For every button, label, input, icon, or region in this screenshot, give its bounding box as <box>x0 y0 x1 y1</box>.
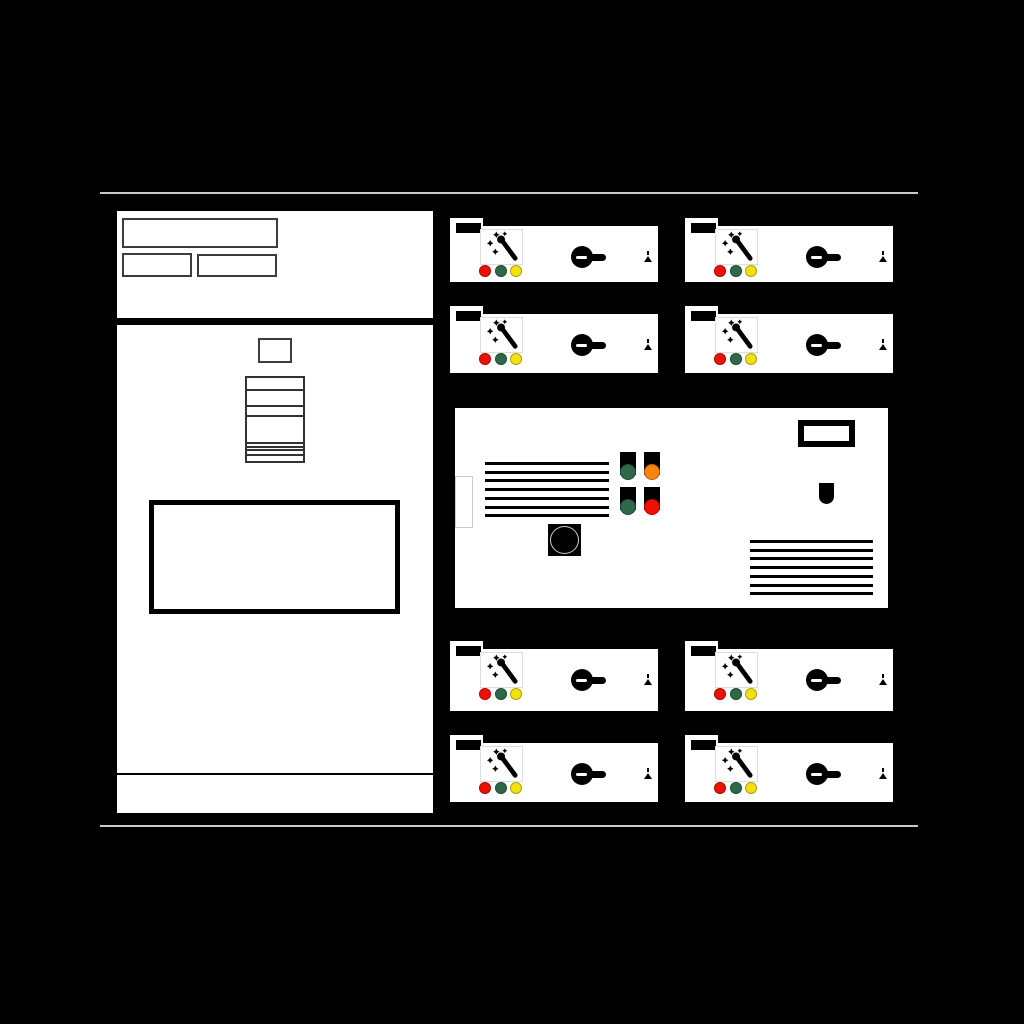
rotary-switch-knob[interactable] <box>806 246 828 268</box>
knob-slit <box>811 773 822 776</box>
rotary-switch-knob[interactable] <box>806 669 828 691</box>
position-arrow-icon <box>879 344 887 350</box>
relay-stack-line-3 <box>247 415 303 417</box>
position-arrow-icon <box>644 344 652 350</box>
bay-b4 <box>685 743 893 802</box>
indicator-lamp-green <box>730 688 742 700</box>
right-louver-line-7 <box>750 592 873 595</box>
frame-line-bottom <box>100 825 918 827</box>
switch-mimic-icon <box>715 317 758 353</box>
knob-handle <box>584 254 606 261</box>
latch-slot <box>691 311 716 321</box>
cabinet-divider <box>117 318 433 325</box>
bay-b1 <box>685 226 893 282</box>
relay-stack-line-2 <box>247 405 303 407</box>
knob-handle <box>819 677 841 684</box>
switch-mimic-icon <box>715 229 758 265</box>
indicator-lamp-green <box>730 782 742 794</box>
position-arrow-icon <box>879 256 887 262</box>
knob-slit <box>576 344 587 347</box>
knob-slit <box>576 679 587 682</box>
bay-b3 <box>685 649 893 711</box>
indicator-lamp-yellow <box>745 353 757 365</box>
switch-mimic-icon <box>480 746 523 782</box>
relay-stack-line-1 <box>247 389 303 391</box>
relay-stack <box>245 376 305 463</box>
position-tick <box>882 339 884 343</box>
drawing-canvas <box>0 0 1024 1024</box>
indicator-lamp-green <box>495 265 507 277</box>
rotary-switch-knob[interactable] <box>571 669 593 691</box>
bay-a4 <box>450 743 658 802</box>
position-tick <box>647 339 649 343</box>
knob-handle <box>819 342 841 349</box>
position-tick <box>647 251 649 255</box>
right-louver-line-1 <box>750 540 873 543</box>
frame-line-top <box>100 192 918 194</box>
knob-slit <box>576 256 587 259</box>
left-louver-line-7 <box>485 514 609 517</box>
indicator-lamp-yellow <box>745 782 757 794</box>
indicator-lamp-red <box>714 265 726 277</box>
relay-stack-line-4 <box>247 442 303 444</box>
relay-stack-line-6 <box>247 449 303 451</box>
knob-slit <box>811 679 822 682</box>
nameplate-3 <box>197 254 277 277</box>
left-louver-line-5 <box>485 497 609 500</box>
side-tab <box>455 476 473 528</box>
indicator-lamp-green <box>730 353 742 365</box>
indicator-lamp-red <box>479 782 491 794</box>
indicator-lamp-green <box>495 782 507 794</box>
knob-handle <box>819 771 841 778</box>
indicator-lamp-red <box>479 265 491 277</box>
indicator-lamp-green <box>730 265 742 277</box>
switch-mimic-icon <box>480 229 523 265</box>
left-louver-line-6 <box>485 506 609 509</box>
switch-mimic-icon <box>715 652 758 688</box>
indicator-lamp-red <box>714 782 726 794</box>
position-arrow-icon <box>644 773 652 779</box>
meter-cutout <box>258 338 292 363</box>
relay-stack-line-5 <box>247 446 303 448</box>
kickplate-divider <box>117 773 433 775</box>
nameplate-1 <box>122 218 278 248</box>
meter-display-window <box>798 420 855 447</box>
bay-b2 <box>685 314 893 373</box>
position-tick <box>882 251 884 255</box>
knob-slit <box>576 773 587 776</box>
position-arrow-icon <box>644 679 652 685</box>
central-control-panel <box>455 408 888 608</box>
indicator-lamp-green <box>495 688 507 700</box>
knob-handle <box>584 342 606 349</box>
knob-slit <box>811 256 822 259</box>
rotary-switch-knob[interactable] <box>806 334 828 356</box>
rotary-switch-knob[interactable] <box>806 763 828 785</box>
indicator-lamp-red <box>714 688 726 700</box>
pushbutton-cap-red-4[interactable] <box>644 499 660 515</box>
latch-slot <box>456 740 481 750</box>
switch-mimic-icon <box>480 652 523 688</box>
switch-mimic-icon <box>480 317 523 353</box>
position-arrow-icon <box>644 256 652 262</box>
knob-handle <box>584 771 606 778</box>
left-louver-line-4 <box>485 488 609 491</box>
nameplate-2 <box>122 253 192 277</box>
pushbutton-cap-green-3[interactable] <box>620 499 636 515</box>
position-tick <box>882 768 884 772</box>
right-louver-line-5 <box>750 575 873 578</box>
rotary-switch-knob[interactable] <box>571 334 593 356</box>
pushbutton-cap-green-1[interactable] <box>620 464 636 480</box>
latch-slot <box>456 223 481 233</box>
right-louver-line-4 <box>750 566 873 569</box>
rotary-switch-knob[interactable] <box>571 246 593 268</box>
position-tick <box>647 674 649 678</box>
left-louver-line-2 <box>485 471 609 474</box>
indicator-lamp-yellow <box>510 782 522 794</box>
key-switch-slot[interactable] <box>819 483 834 504</box>
knob-handle <box>584 677 606 684</box>
left-louver-line-3 <box>485 479 609 482</box>
bay-a2 <box>450 314 658 373</box>
incomer-cabinet <box>117 211 433 813</box>
indicator-lamp-red <box>714 353 726 365</box>
relay-stack-line-7 <box>247 454 303 456</box>
indicator-lamp-red <box>479 353 491 365</box>
position-tick <box>882 674 884 678</box>
indicator-lamp-green <box>495 353 507 365</box>
pushbutton-cap-orange-2[interactable] <box>644 464 660 480</box>
latch-slot <box>456 646 481 656</box>
latch-slot <box>691 740 716 750</box>
latch-slot <box>456 311 481 321</box>
indicator-lamp-yellow <box>510 265 522 277</box>
position-arrow-icon <box>879 679 887 685</box>
position-tick <box>647 768 649 772</box>
mushroom-button-ring <box>550 526 579 554</box>
indicator-lamp-yellow <box>745 688 757 700</box>
indicator-lamp-red <box>479 688 491 700</box>
indicator-lamp-yellow <box>510 353 522 365</box>
right-louver-line-6 <box>750 584 873 587</box>
bay-a1 <box>450 226 658 282</box>
mushroom-button[interactable] <box>548 524 581 556</box>
latch-slot <box>691 646 716 656</box>
bay-a3 <box>450 649 658 711</box>
left-louver-line-1 <box>485 462 609 465</box>
right-louver-line-3 <box>750 557 873 560</box>
indicator-lamp-yellow <box>510 688 522 700</box>
indicator-lamp-yellow <box>745 265 757 277</box>
knob-handle <box>819 254 841 261</box>
knob-slit <box>811 344 822 347</box>
right-louver-line-2 <box>750 549 873 552</box>
latch-slot <box>691 223 716 233</box>
front-window <box>149 500 400 614</box>
position-arrow-icon <box>879 773 887 779</box>
switch-mimic-icon <box>715 746 758 782</box>
rotary-switch-knob[interactable] <box>571 763 593 785</box>
